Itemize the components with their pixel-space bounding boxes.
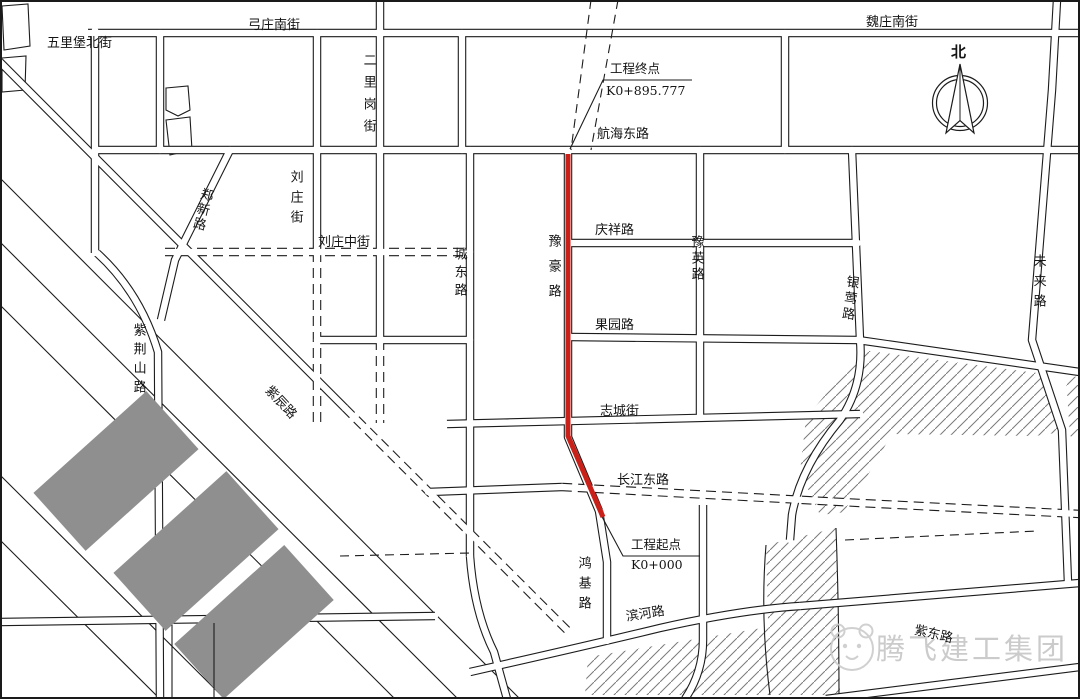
road-network-svg bbox=[0, 0, 1080, 699]
road-label-wulibao: 五里堡北街 bbox=[47, 37, 112, 51]
road-label-hongji: 鸿基路 bbox=[576, 556, 590, 616]
north-compass-icon bbox=[933, 64, 988, 133]
road-label-gongzhuang: 弓庄南街 bbox=[248, 19, 300, 33]
road-label-weilai: 未来路 bbox=[1031, 254, 1045, 314]
road-label-liuzhuang-middle: 刘庄中街 bbox=[318, 236, 370, 250]
road-label-weizhuang: 魏庄南街 bbox=[866, 16, 918, 30]
route-start-chainage: K0+000 bbox=[631, 558, 683, 571]
road-label-changjiang: 长江东路 bbox=[617, 474, 669, 488]
construction-route-map: 五里堡北街 弓庄南街 魏庄南街 航海东路 刘庄中街 庆祥路 果园路 志城街 长江… bbox=[0, 0, 1080, 699]
road-label-erligang: 二里岗街 bbox=[361, 53, 375, 141]
road-label-yuhao: 豫豪路 bbox=[546, 234, 560, 309]
road-label-zijinshan: 紫荆山路 bbox=[131, 323, 145, 399]
route-start-title: 工程起点 bbox=[631, 538, 681, 551]
gray-buildings bbox=[33, 391, 333, 699]
watermark-text: 腾飞建工集团 bbox=[876, 626, 1068, 668]
road-label-yuying: 豫英路 bbox=[689, 235, 703, 283]
road-label-liuzhuang: 刘庄街 bbox=[288, 170, 302, 230]
road-label-hanghai: 航海东路 bbox=[597, 128, 649, 142]
compass-north-label: 北 bbox=[951, 45, 966, 61]
road-label-zhicheng: 志城街 bbox=[600, 405, 639, 419]
road-label-chengdong: 城东路 bbox=[452, 247, 466, 301]
road-label-qingxiang: 庆祥路 bbox=[595, 224, 634, 238]
road-label-guoyuan: 果园路 bbox=[595, 319, 634, 333]
route-end-chainage: K0+895.777 bbox=[606, 84, 685, 97]
route-end-title: 工程终点 bbox=[610, 62, 660, 75]
